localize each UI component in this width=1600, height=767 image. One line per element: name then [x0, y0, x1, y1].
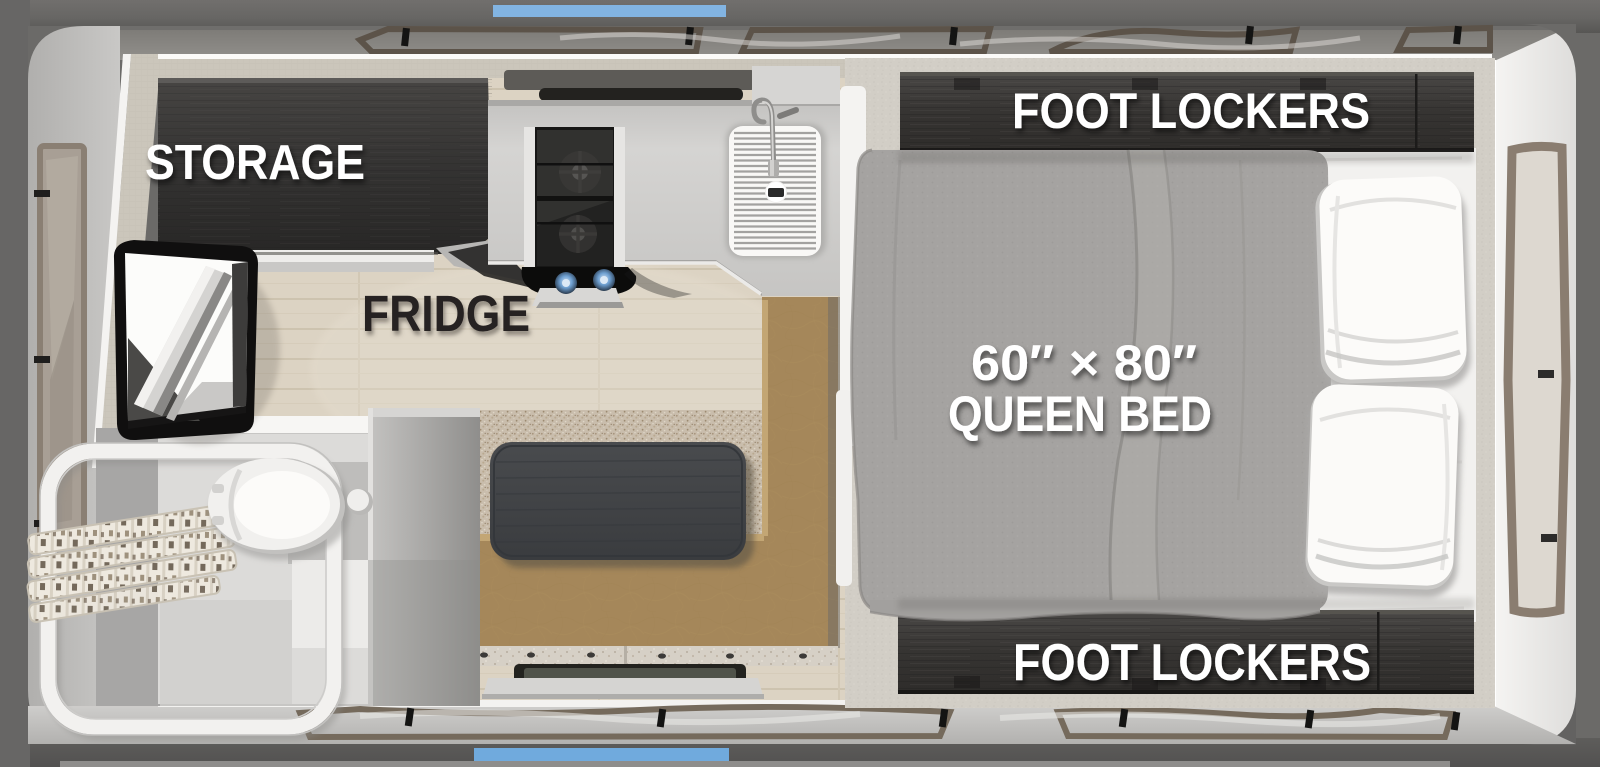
svg-text:60″ × 80″: 60″ × 80″ [971, 335, 1197, 391]
svg-text:STORAGE: STORAGE [145, 136, 365, 190]
svg-text:FRIDGE: FRIDGE [362, 285, 530, 342]
svg-text:FOOT LOCKERS: FOOT LOCKERS [1012, 83, 1370, 139]
svg-text:QUEEN BED: QUEEN BED [948, 386, 1212, 442]
svg-text:FOOT LOCKERS: FOOT LOCKERS [1013, 634, 1371, 692]
